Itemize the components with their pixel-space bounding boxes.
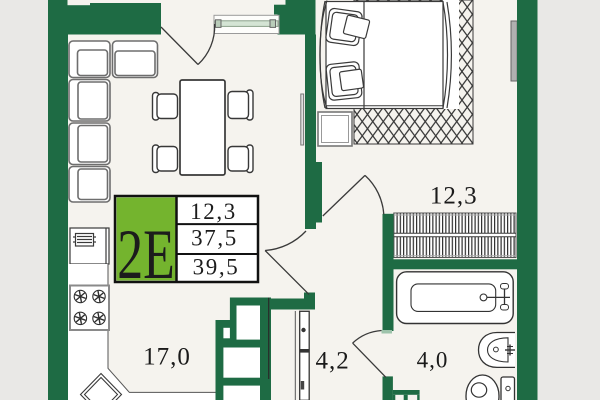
svg-text:4,2: 4,2 [315,348,349,375]
svg-text:12,3: 12,3 [190,199,237,224]
svg-text:4,0: 4,0 [417,347,449,372]
svg-text:2E: 2E [117,216,175,294]
svg-text:37,5: 37,5 [191,226,238,251]
svg-text:39,5: 39,5 [193,255,240,280]
svg-text:17,0: 17,0 [143,343,191,370]
svg-text:12,3: 12,3 [430,182,478,209]
